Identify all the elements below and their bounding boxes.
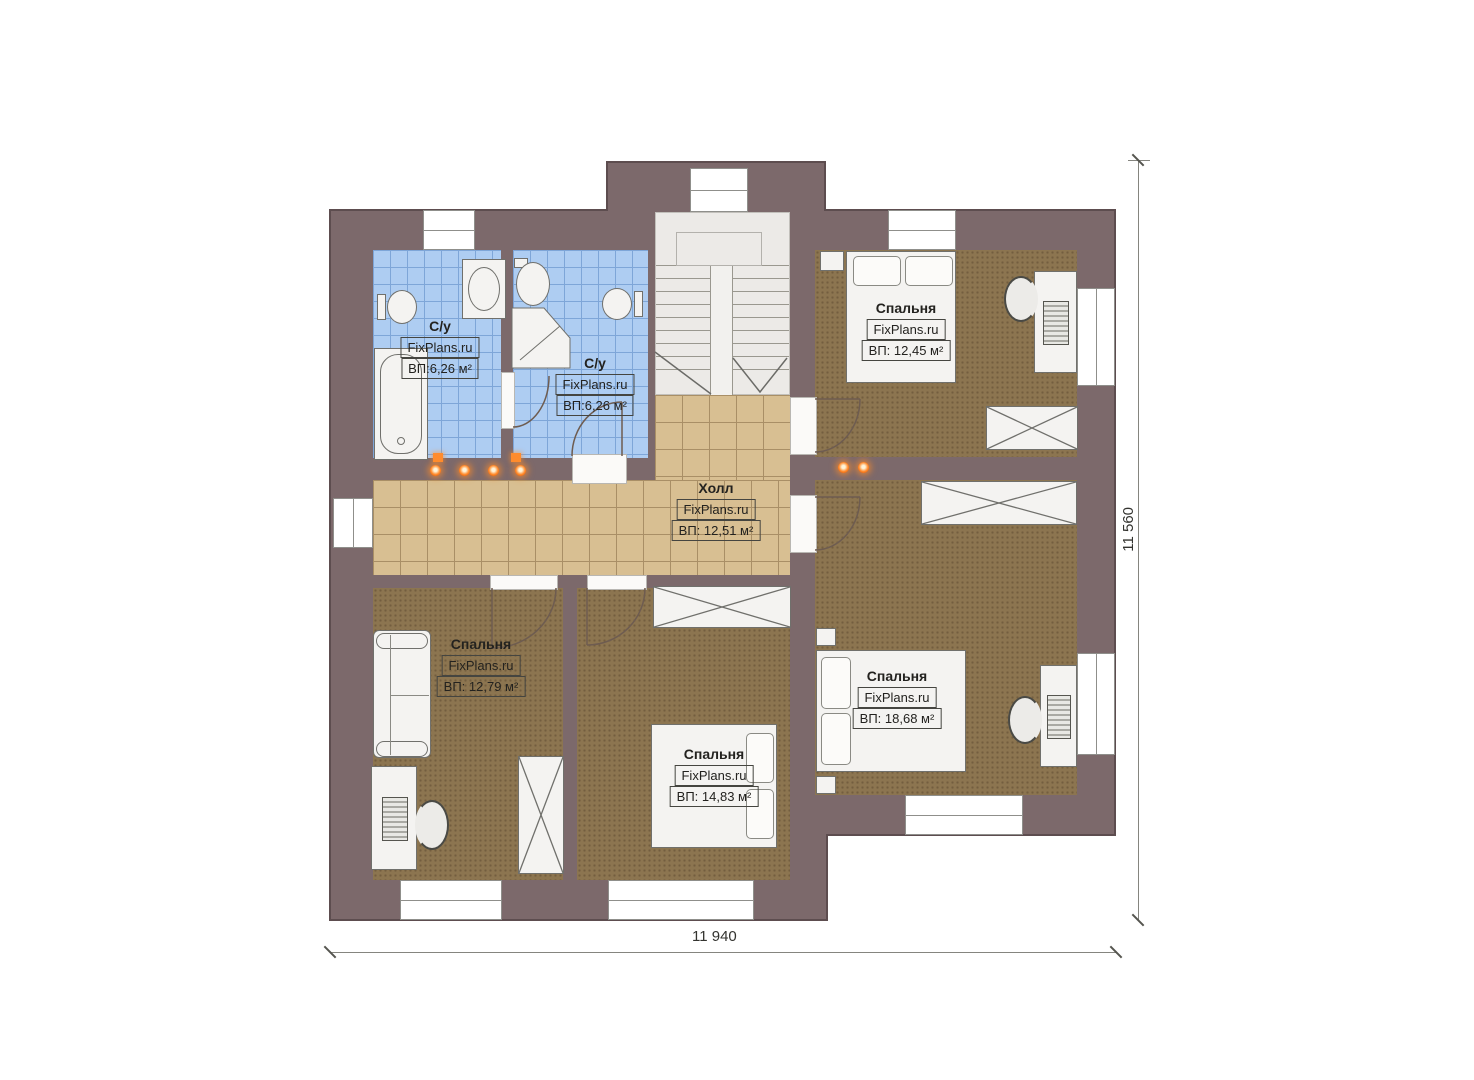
- wardrobe: [653, 586, 791, 628]
- nightstand: [820, 251, 844, 271]
- window: [608, 880, 754, 920]
- floor-plan-canvas: С/у FixPlans.ru ВП:6,26 м² С/у FixPlans.…: [0, 0, 1474, 1080]
- room-name: Холл: [698, 480, 733, 496]
- sink-basin: [516, 262, 550, 306]
- room-label-bedroom-bottom-left: Спальня FixPlans.ru ВП: 12,79 м²: [437, 636, 526, 697]
- pillow: [821, 713, 851, 765]
- sink-basin: [468, 267, 500, 311]
- toilet: [602, 288, 644, 320]
- room-area: ВП: 14,83 м²: [670, 786, 759, 807]
- room-label-hall: Холл FixPlans.ru ВП: 12,51 м²: [672, 480, 761, 541]
- desk: [1040, 665, 1077, 767]
- window: [1077, 653, 1115, 755]
- room-name: Спальня: [684, 746, 744, 762]
- wardrobe: [518, 756, 564, 874]
- desk: [1034, 271, 1077, 373]
- pillow: [905, 256, 953, 286]
- watermark: FixPlans.ru: [857, 687, 936, 708]
- room-name: Спальня: [876, 300, 936, 316]
- toilet-bowl: [602, 288, 632, 320]
- bathtub-drain: [397, 437, 405, 445]
- room-label-bath-right: С/у FixPlans.ru ВП:6,26 м²: [555, 355, 634, 416]
- room-area: ВП: 18,68 м²: [853, 708, 942, 729]
- stair-opening-outline: [676, 232, 762, 266]
- heater-icon: [511, 453, 521, 462]
- computer: [382, 797, 408, 841]
- watermark: FixPlans.ru: [441, 655, 520, 676]
- heater-dot-icon: [459, 465, 470, 476]
- stair-direction-arrows: [653, 350, 790, 396]
- sofa-armrest: [376, 633, 428, 649]
- room-label-bath-left: С/у FixPlans.ru ВП:6,26 м²: [400, 318, 479, 379]
- door-arc: [587, 588, 645, 645]
- heater-icon: [433, 453, 443, 462]
- dimension-height-label: 11 560: [1120, 507, 1137, 552]
- room-label-bedroom-top-right: Спальня FixPlans.ru ВП: 12,45 м²: [862, 300, 951, 361]
- room-area: ВП: 12,51 м²: [672, 520, 761, 541]
- sofa-armrest: [376, 741, 428, 757]
- window: [905, 795, 1023, 835]
- door-arc: [815, 399, 861, 453]
- dimension-line-bottom: [330, 952, 1116, 953]
- door: [790, 495, 817, 553]
- room-name: Спальня: [451, 636, 511, 652]
- heater-dot-icon: [858, 462, 869, 473]
- door-arc: [513, 376, 549, 427]
- window: [400, 880, 502, 920]
- wardrobe: [986, 406, 1078, 450]
- computer: [1043, 301, 1069, 345]
- wardrobe: [921, 481, 1077, 525]
- dimension-width-label: 11 940: [692, 928, 737, 945]
- watermark: FixPlans.ru: [674, 765, 753, 786]
- sofa: [373, 630, 431, 758]
- window: [888, 210, 956, 250]
- chair: [1008, 696, 1042, 744]
- sink: [514, 258, 552, 306]
- desk: [371, 766, 417, 870]
- computer: [1047, 695, 1071, 739]
- heater-dot-icon: [488, 465, 499, 476]
- room-name: С/у: [584, 355, 606, 371]
- nightstand: [816, 776, 836, 794]
- room-area: ВП: 12,45 м²: [862, 340, 951, 361]
- room-label-bedroom-bottom-middle: Спальня FixPlans.ru ВП: 14,83 м²: [670, 746, 759, 807]
- watermark: FixPlans.ru: [676, 499, 755, 520]
- sofa-cushion-line: [391, 695, 429, 696]
- room-name: С/у: [429, 318, 451, 334]
- pillow: [821, 657, 851, 709]
- watermark: FixPlans.ru: [555, 374, 634, 395]
- sink-counter: [462, 259, 506, 319]
- door: [572, 454, 627, 484]
- room-label-bedroom-right: Спальня FixPlans.ru ВП: 18,68 м²: [853, 668, 942, 729]
- watermark: FixPlans.ru: [866, 319, 945, 340]
- room-area: ВП:6,26 м²: [556, 395, 634, 416]
- room-area: ВП:6,26 м²: [401, 358, 479, 379]
- room-area: ВП: 12,79 м²: [437, 676, 526, 697]
- dimension-line-right: [1138, 160, 1139, 920]
- window: [1077, 288, 1115, 386]
- door: [790, 397, 817, 455]
- toilet-tank: [634, 291, 643, 317]
- chair: [415, 800, 449, 850]
- toilet-tank: [377, 294, 386, 320]
- heater-dot-icon: [838, 462, 849, 473]
- window: [333, 498, 373, 548]
- window: [690, 168, 748, 212]
- nightstand: [816, 628, 836, 646]
- heater-dot-icon: [430, 465, 441, 476]
- door-arc: [815, 497, 861, 551]
- pillow: [853, 256, 901, 286]
- room-name: Спальня: [867, 668, 927, 684]
- chair: [1004, 276, 1038, 322]
- window: [423, 210, 475, 250]
- watermark: FixPlans.ru: [400, 337, 479, 358]
- heater-dot-icon: [515, 465, 526, 476]
